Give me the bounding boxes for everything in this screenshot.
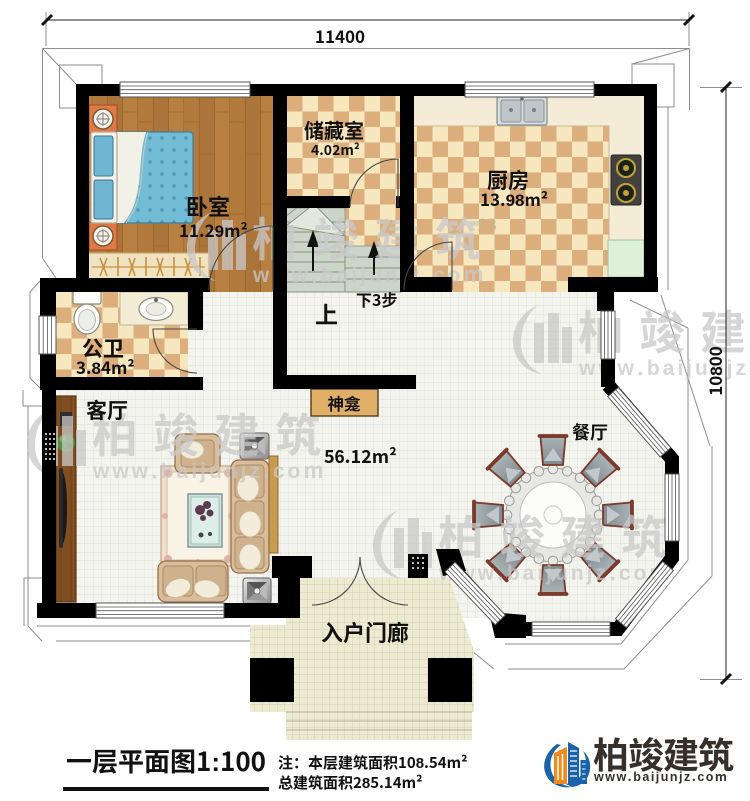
svg-text:10800: 10800 [702, 346, 727, 396]
svg-text:3.84m²: 3.84m² [76, 354, 135, 379]
svg-text:56.12m²: 56.12m² [324, 443, 397, 469]
svg-text:注：本层建筑面积108.54m²: 注：本层建筑面积108.54m² [278, 752, 467, 773]
svg-text:总建筑面积285.14m²: 总建筑面积285.14m² [278, 772, 422, 793]
svg-text:入户门廊: 入户门廊 [321, 616, 409, 648]
svg-text:客厅: 客厅 [86, 395, 128, 425]
svg-text:一层平面图1:100: 一层平面图1:100 [66, 742, 266, 779]
svg-text:www.baijunjz.com: www.baijunjz.com [92, 455, 327, 485]
svg-text:11400: 11400 [315, 23, 365, 48]
svg-text:下3步: 下3步 [356, 287, 397, 311]
svg-text:餐厅: 餐厅 [572, 419, 608, 445]
svg-text:www.baijunjz.com: www.baijunjz.com [593, 766, 728, 785]
svg-text:4.02m²: 4.02m² [311, 140, 360, 160]
svg-text:11.29m²: 11.29m² [179, 217, 248, 242]
svg-text:13.98m²: 13.98m² [480, 186, 548, 211]
svg-text:上: 上 [315, 296, 338, 330]
